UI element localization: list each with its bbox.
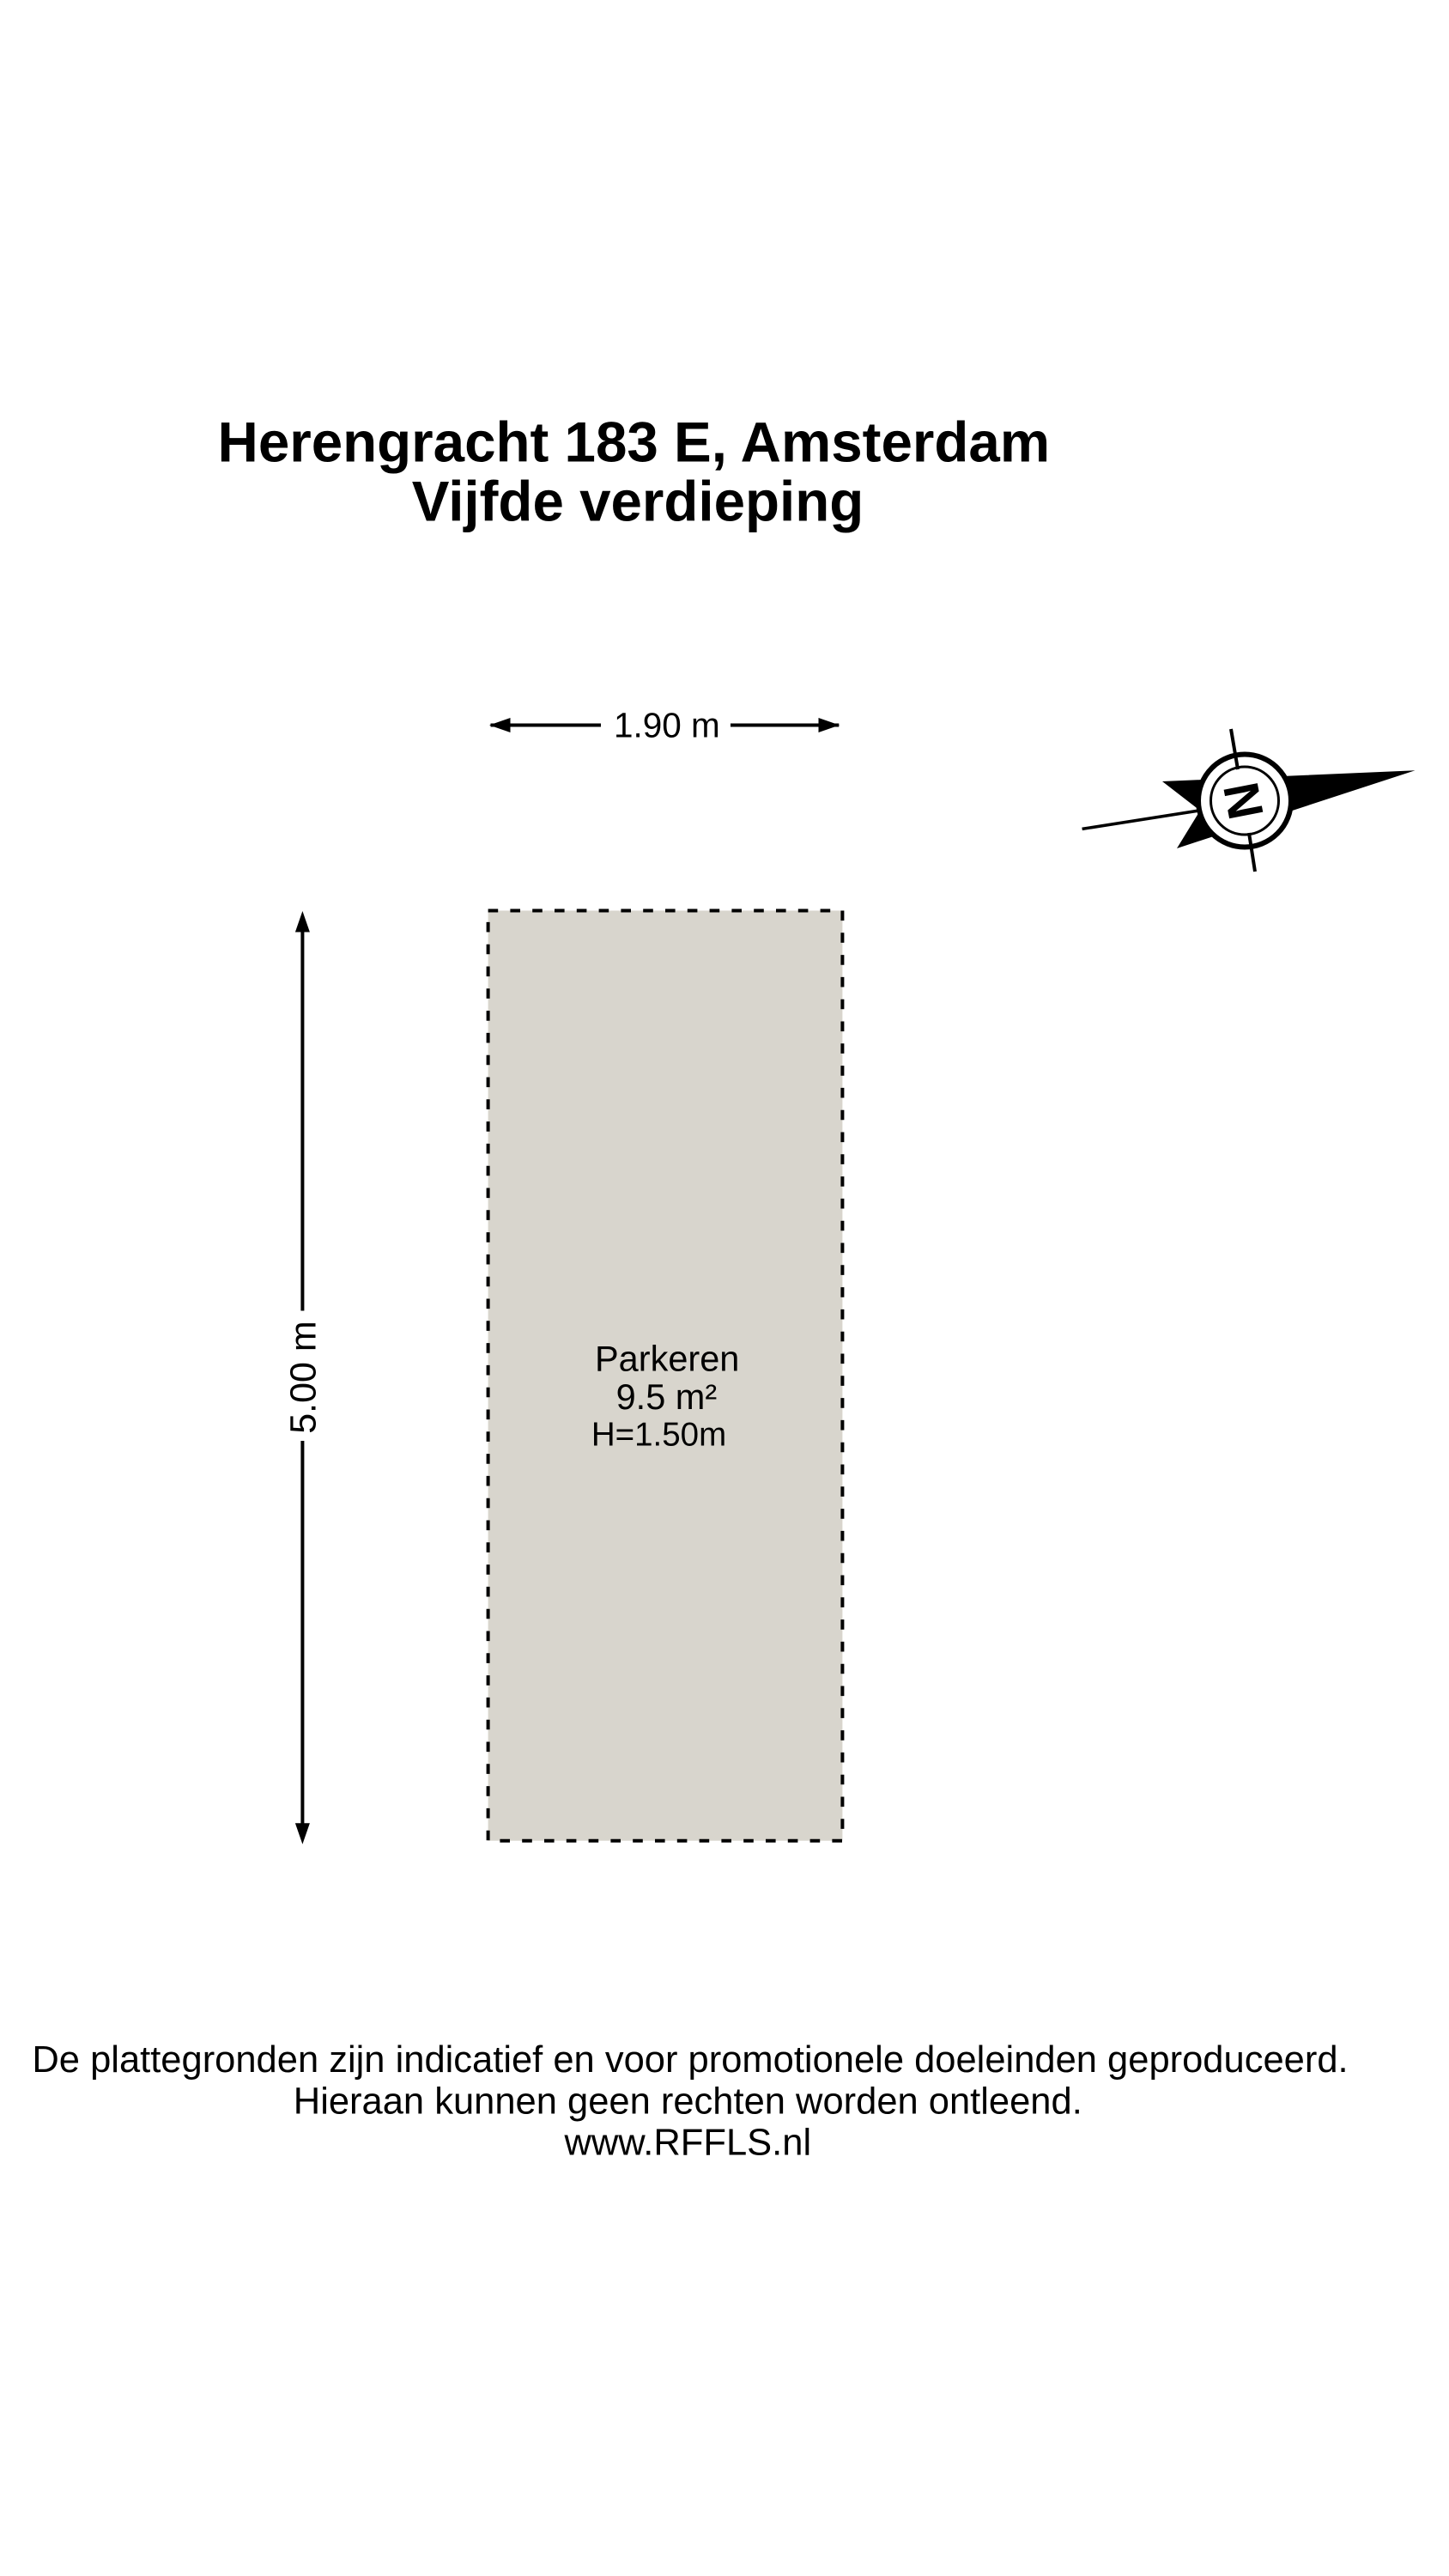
- svg-text:Hieraan kunnen geen rechten wo: Hieraan kunnen geen rechten worden ontle…: [294, 2081, 1082, 2123]
- svg-text:www.RFFLS.nl: www.RFFLS.nl: [563, 2123, 811, 2164]
- svg-text:9.5 m²: 9.5 m²: [616, 1376, 718, 1417]
- svg-text:H=1.50m: H=1.50m: [591, 1416, 726, 1453]
- svg-text:Parkeren: Parkeren: [595, 1339, 739, 1379]
- svg-text:5.00 m: 5.00 m: [283, 1321, 324, 1433]
- svg-text:Herengracht 183 E, Amsterdam: Herengracht 183 E, Amsterdam: [218, 411, 1051, 474]
- svg-text:De plattegronden zijn indicati: De plattegronden zijn indicatief en voor…: [32, 2039, 1348, 2081]
- svg-text:1.90 m: 1.90 m: [614, 705, 720, 744]
- svg-text:Vijfde verdieping: Vijfde verdieping: [412, 471, 864, 533]
